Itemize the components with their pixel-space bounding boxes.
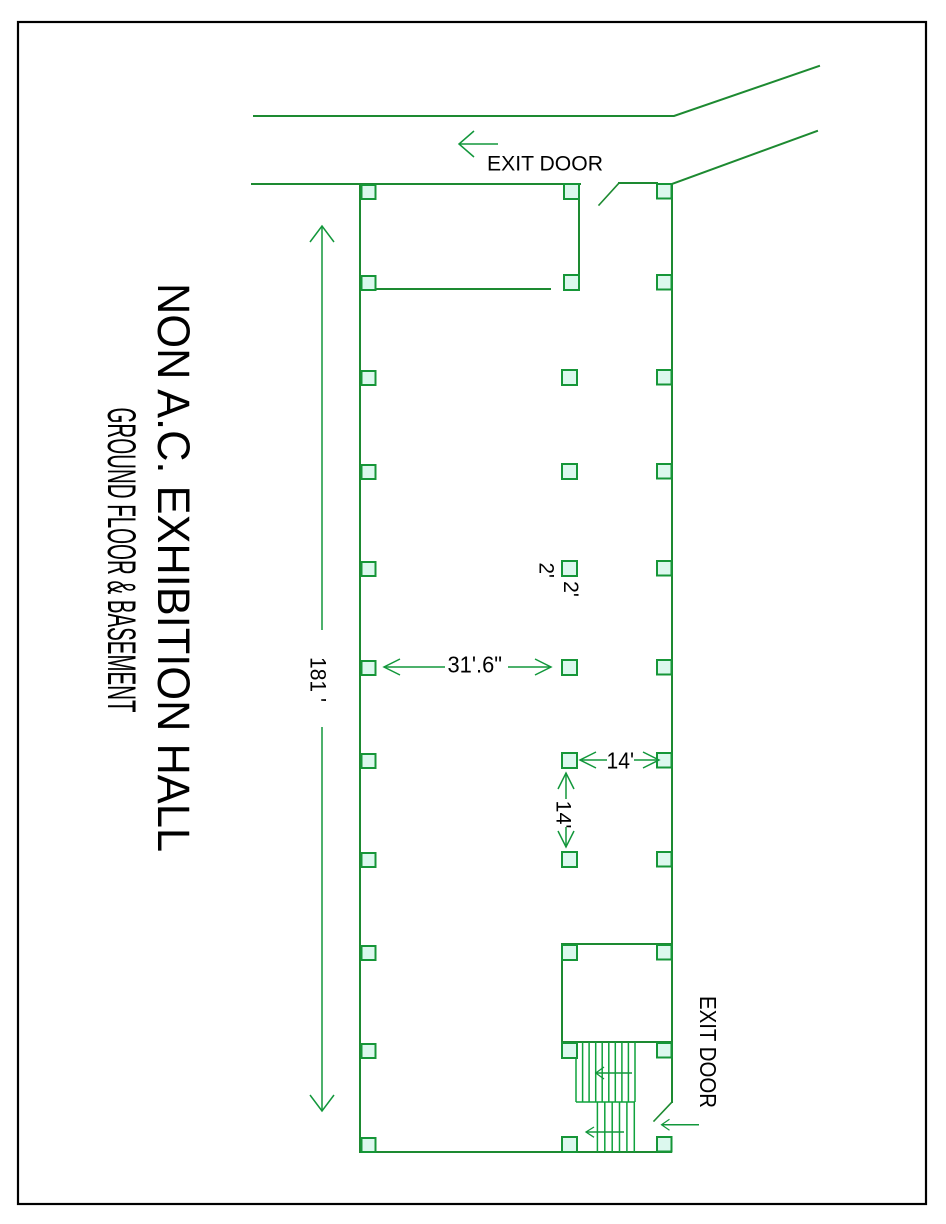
svg-text:EXIT DOOR: EXIT DOOR bbox=[695, 996, 721, 1108]
svg-text:181 ': 181 ' bbox=[306, 657, 331, 702]
svg-text:EXIT DOOR: EXIT DOOR bbox=[487, 153, 603, 176]
svg-text:14': 14' bbox=[552, 801, 576, 829]
svg-text:31'.6": 31'.6" bbox=[448, 652, 503, 678]
svg-text:2': 2' bbox=[535, 563, 559, 579]
svg-text:2': 2' bbox=[559, 581, 583, 597]
svg-text:NON A.C. EXHIBITION HALL: NON A.C. EXHIBITION HALL bbox=[148, 283, 199, 852]
svg-text:14': 14' bbox=[607, 748, 635, 774]
svg-text:GROUND FLOOR & BASEMENT: GROUND FLOOR & BASEMENT bbox=[99, 408, 143, 713]
